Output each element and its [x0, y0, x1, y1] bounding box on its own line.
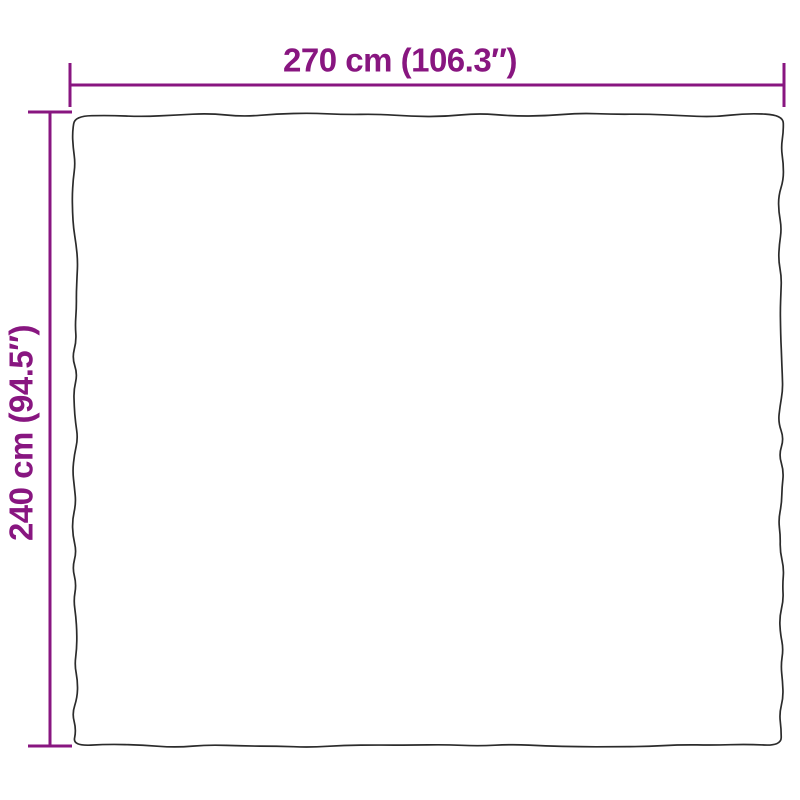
width-dimension-label: 270 cm (106.3″) — [283, 44, 517, 77]
height-dimension-label: 240 cm (94.5″) — [5, 325, 38, 541]
blanket-outline — [72, 113, 783, 747]
diagram-graphics — [0, 0, 800, 800]
product-dimension-diagram: 270 cm (106.3″) 240 cm (94.5″) — [0, 0, 800, 800]
